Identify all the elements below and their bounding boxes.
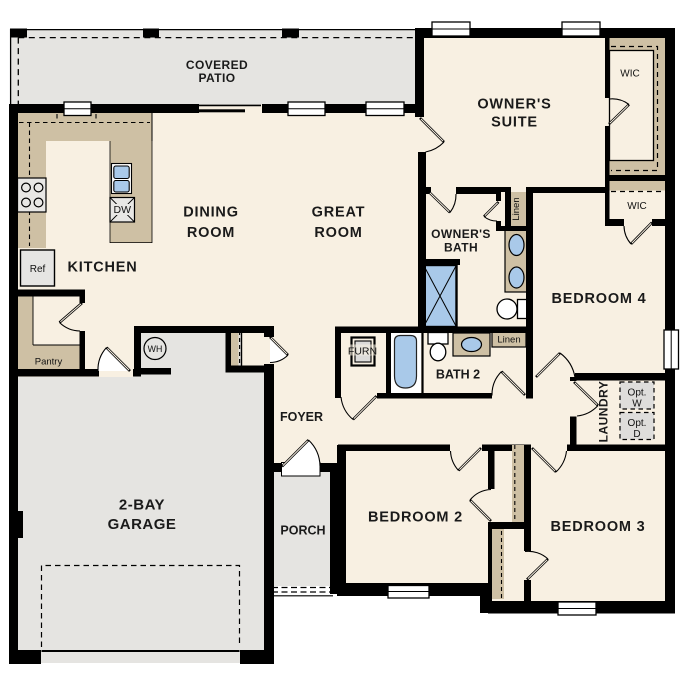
svg-text:D: D (633, 429, 640, 440)
svg-text:KITCHEN: KITCHEN (67, 260, 137, 276)
svg-text:Linen: Linen (497, 335, 520, 346)
svg-text:Opt.: Opt. (628, 388, 647, 399)
svg-text:SUITE: SUITE (491, 115, 538, 131)
svg-text:COVERED: COVERED (186, 58, 248, 72)
svg-text:FOYER: FOYER (280, 410, 323, 424)
svg-text:BATH: BATH (444, 241, 478, 255)
svg-text:PATIO: PATIO (199, 71, 236, 85)
svg-text:WIC: WIC (620, 69, 639, 80)
svg-text:OWNER'S: OWNER'S (477, 96, 551, 112)
svg-text:Ref: Ref (30, 264, 46, 275)
svg-text:DW: DW (114, 204, 132, 216)
svg-text:ROOM: ROOM (187, 225, 235, 241)
svg-text:Linen: Linen (511, 197, 522, 220)
svg-text:FURN: FURN (348, 346, 377, 358)
svg-text:DINING: DINING (183, 205, 239, 221)
svg-text:Pantry: Pantry (35, 357, 63, 368)
svg-text:WH: WH (148, 344, 163, 354)
svg-text:Opt.: Opt. (628, 418, 647, 429)
svg-text:W: W (632, 399, 642, 410)
svg-text:BEDROOM 4: BEDROOM 4 (551, 291, 646, 307)
svg-text:OWNER'S: OWNER'S (431, 227, 491, 241)
svg-text:PORCH: PORCH (280, 524, 325, 538)
svg-text:GREAT: GREAT (312, 205, 366, 221)
svg-text:2-BAY: 2-BAY (119, 497, 165, 514)
svg-text:BEDROOM 3: BEDROOM 3 (550, 519, 645, 535)
svg-text:LAUNDRY: LAUNDRY (597, 381, 611, 443)
svg-text:ROOM: ROOM (314, 225, 362, 241)
svg-text:BEDROOM 2: BEDROOM 2 (368, 510, 463, 526)
svg-text:BATH 2: BATH 2 (436, 368, 480, 382)
svg-text:WIC: WIC (627, 201, 646, 212)
svg-text:GARAGE: GARAGE (108, 516, 177, 533)
